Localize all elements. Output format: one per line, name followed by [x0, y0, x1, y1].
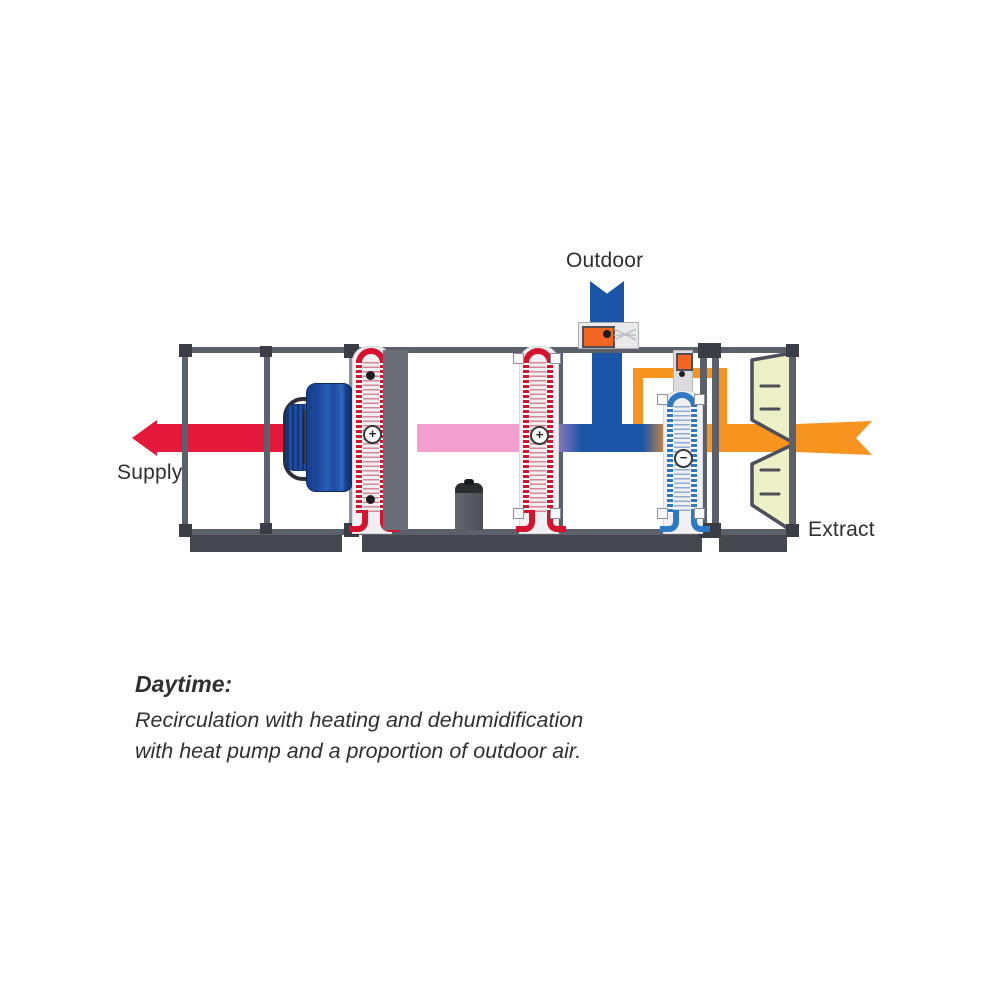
box3-top-bar: [712, 347, 796, 353]
condenser-coil-tube: [523, 360, 529, 514]
box1-divider: [264, 347, 270, 535]
heating-coil-1-hook: [349, 510, 368, 532]
evaporator-coil-tube: [667, 404, 673, 514]
box3-bottom-bar: [712, 529, 796, 535]
bag-filter-lower: [752, 445, 792, 531]
extract-label: Extract: [808, 518, 875, 542]
heat-pump-dot: [679, 371, 685, 377]
supply-arrow-head-icon: [132, 420, 157, 456]
condenser-coil-tab: [550, 508, 561, 519]
evaporator-coil-tab: [694, 394, 705, 405]
caption-line-1: Recirculation with heating and dehumidif…: [135, 705, 715, 736]
refrigerant-pipe-left: [633, 378, 643, 424]
heat-pump-valve: [676, 353, 693, 371]
ahu-diagram: + + − Outdoor Supply Extract Daytime:: [0, 0, 1000, 1000]
caption: Daytime: Recirculation with heating and …: [135, 671, 715, 767]
condenser-coil-tab: [513, 508, 524, 519]
corner-block: [179, 344, 192, 357]
condenser-coil-tab: [513, 353, 524, 364]
bag-filter-upper: [752, 353, 792, 442]
heating-coil-1-bolt: [366, 371, 375, 380]
damper-actuator-dot: [603, 330, 611, 338]
box3-right-wall: [789, 347, 796, 535]
box2-base: [362, 535, 702, 552]
box3-left-wall: [712, 347, 719, 535]
damper-blade-icon: [613, 326, 637, 344]
box1-base: [190, 535, 342, 552]
extract-arrow-icon: [796, 421, 872, 455]
supply-fan: [306, 383, 353, 492]
heating-coil-1-tube: [356, 360, 362, 514]
damper-actuator: [582, 326, 615, 348]
corner-block: [698, 343, 721, 358]
box1-left-wall: [182, 347, 188, 535]
outdoor-arrow-icon: [590, 281, 624, 323]
evaporator-coil-tab: [657, 394, 668, 405]
corner-block: [786, 524, 799, 537]
supply-label: Supply: [117, 461, 182, 485]
corner-block: [786, 344, 799, 357]
caption-title: Daytime:: [135, 671, 715, 698]
corner-block: [260, 346, 272, 357]
outdoor-label: Outdoor: [566, 249, 643, 273]
condenser-coil-plus-icon: +: [530, 426, 549, 445]
heating-coil-1-bolt: [366, 495, 375, 504]
corner-block: [179, 524, 192, 537]
caption-line-2: with heat pump and a proportion of outdo…: [135, 736, 715, 767]
mixing-panel: [383, 350, 408, 530]
evaporator-coil-tab: [657, 508, 668, 519]
heating-coil-1-plus-icon: +: [363, 425, 382, 444]
corner-block: [260, 523, 272, 534]
humidifier-nub: [464, 479, 474, 485]
evaporator-coil-tab: [694, 508, 705, 519]
condenser-coil-tab: [550, 353, 561, 364]
evaporator-coil-minus-icon: −: [674, 449, 693, 468]
